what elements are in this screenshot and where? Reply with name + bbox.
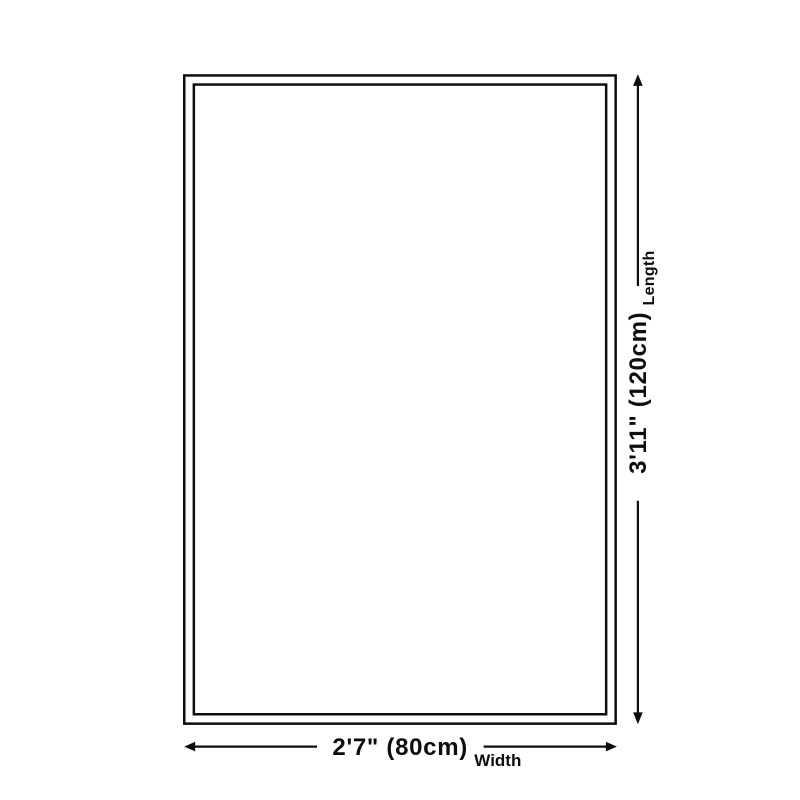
- svg-text:Width: Width: [474, 751, 521, 770]
- svg-text:Length: Length: [641, 250, 658, 305]
- svg-text:2'7" (80cm): 2'7" (80cm): [332, 734, 468, 761]
- svg-text:3'11" (120cm): 3'11" (120cm): [625, 312, 652, 474]
